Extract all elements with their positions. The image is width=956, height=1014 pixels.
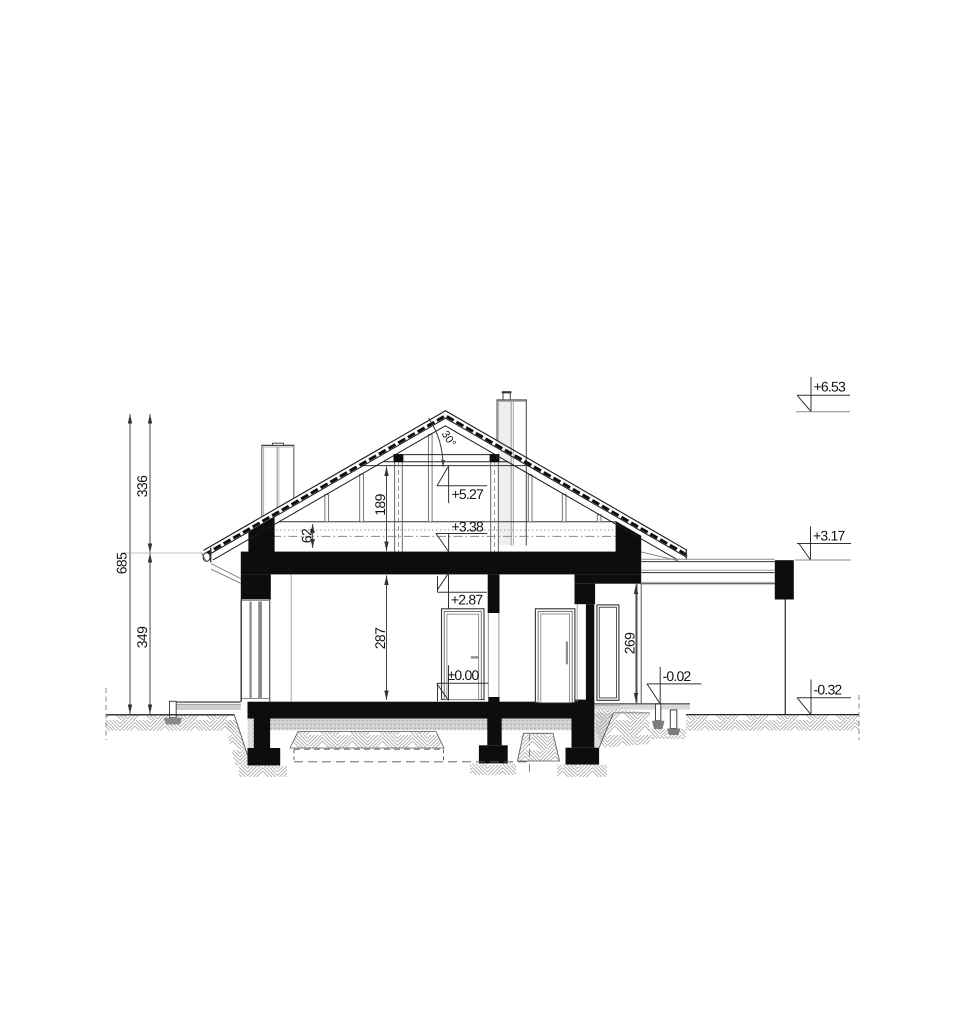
svg-text:+6.53: +6.53 xyxy=(814,379,846,395)
svg-text:-0.02: -0.02 xyxy=(663,668,692,684)
svg-text:269: 269 xyxy=(622,632,638,654)
svg-text:287: 287 xyxy=(372,627,388,649)
svg-text:+2.87: +2.87 xyxy=(451,592,483,608)
svg-text:349: 349 xyxy=(134,626,150,648)
svg-text:±0.00: ±0.00 xyxy=(448,667,480,683)
svg-text:685: 685 xyxy=(114,552,130,574)
svg-text:+3.17: +3.17 xyxy=(813,528,845,544)
svg-text:189: 189 xyxy=(372,493,388,515)
svg-text:+5.27: +5.27 xyxy=(452,486,484,502)
svg-text:-0.32: -0.32 xyxy=(814,682,843,698)
svg-text:62: 62 xyxy=(298,528,314,543)
svg-text:336: 336 xyxy=(134,475,150,497)
svg-text:+3.38: +3.38 xyxy=(452,519,484,535)
